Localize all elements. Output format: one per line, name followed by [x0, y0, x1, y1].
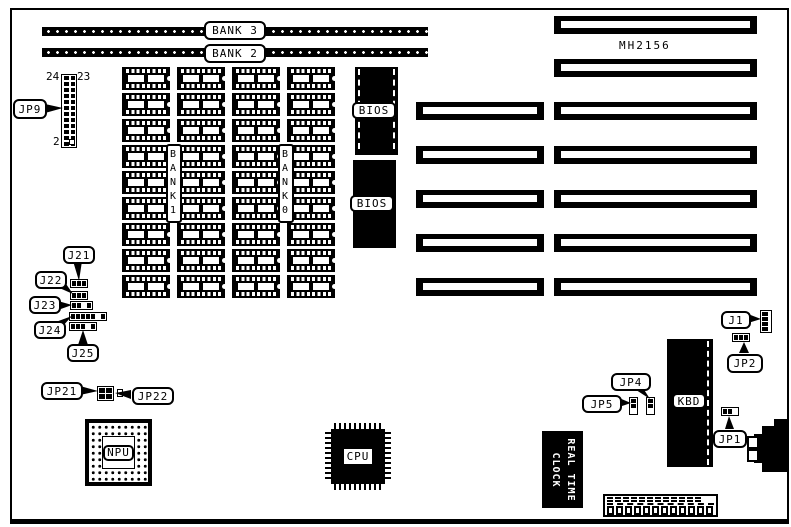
callout-j23: J23 [29, 296, 61, 314]
leader-jp9 [45, 104, 63, 113]
callout-jp4: JP4 [611, 373, 651, 391]
label-bank1: BANK1 [166, 144, 182, 223]
label-npu: NPU [103, 445, 134, 461]
callout-jp22: JP22 [132, 387, 174, 405]
callout-j25: J25 [67, 344, 99, 362]
callout-j1: J1 [721, 311, 751, 329]
callout-jp9: JP9 [13, 99, 47, 119]
label-bank2: BANK 2 [204, 44, 266, 63]
callout-jp21: JP21 [41, 382, 83, 400]
motherboard-diagram: BANK 3 BANK 2 MH2156 24 23 2 JP9 BANK1 B… [0, 0, 791, 527]
callout-j22: J22 [35, 271, 67, 289]
label-bios-top: BIOS [352, 102, 396, 119]
label-bank3: BANK 3 [204, 21, 266, 40]
callout-jp5: JP5 [582, 395, 622, 413]
leader-jp1 [725, 416, 734, 429]
callout-j24: J24 [34, 321, 66, 339]
callout-jp1: JP1 [713, 430, 747, 448]
label-bios-bottom: BIOS [350, 195, 394, 212]
leader-j21 [73, 261, 82, 281]
leader-jp2 [739, 342, 749, 353]
leader-jp22 [115, 390, 131, 399]
callout-jp2: JP2 [727, 354, 763, 373]
label-bank0: BANK0 [278, 144, 294, 223]
label-kbd: KBD [672, 393, 706, 409]
callout-j21: J21 [63, 246, 95, 264]
leader-j25 [78, 330, 88, 345]
